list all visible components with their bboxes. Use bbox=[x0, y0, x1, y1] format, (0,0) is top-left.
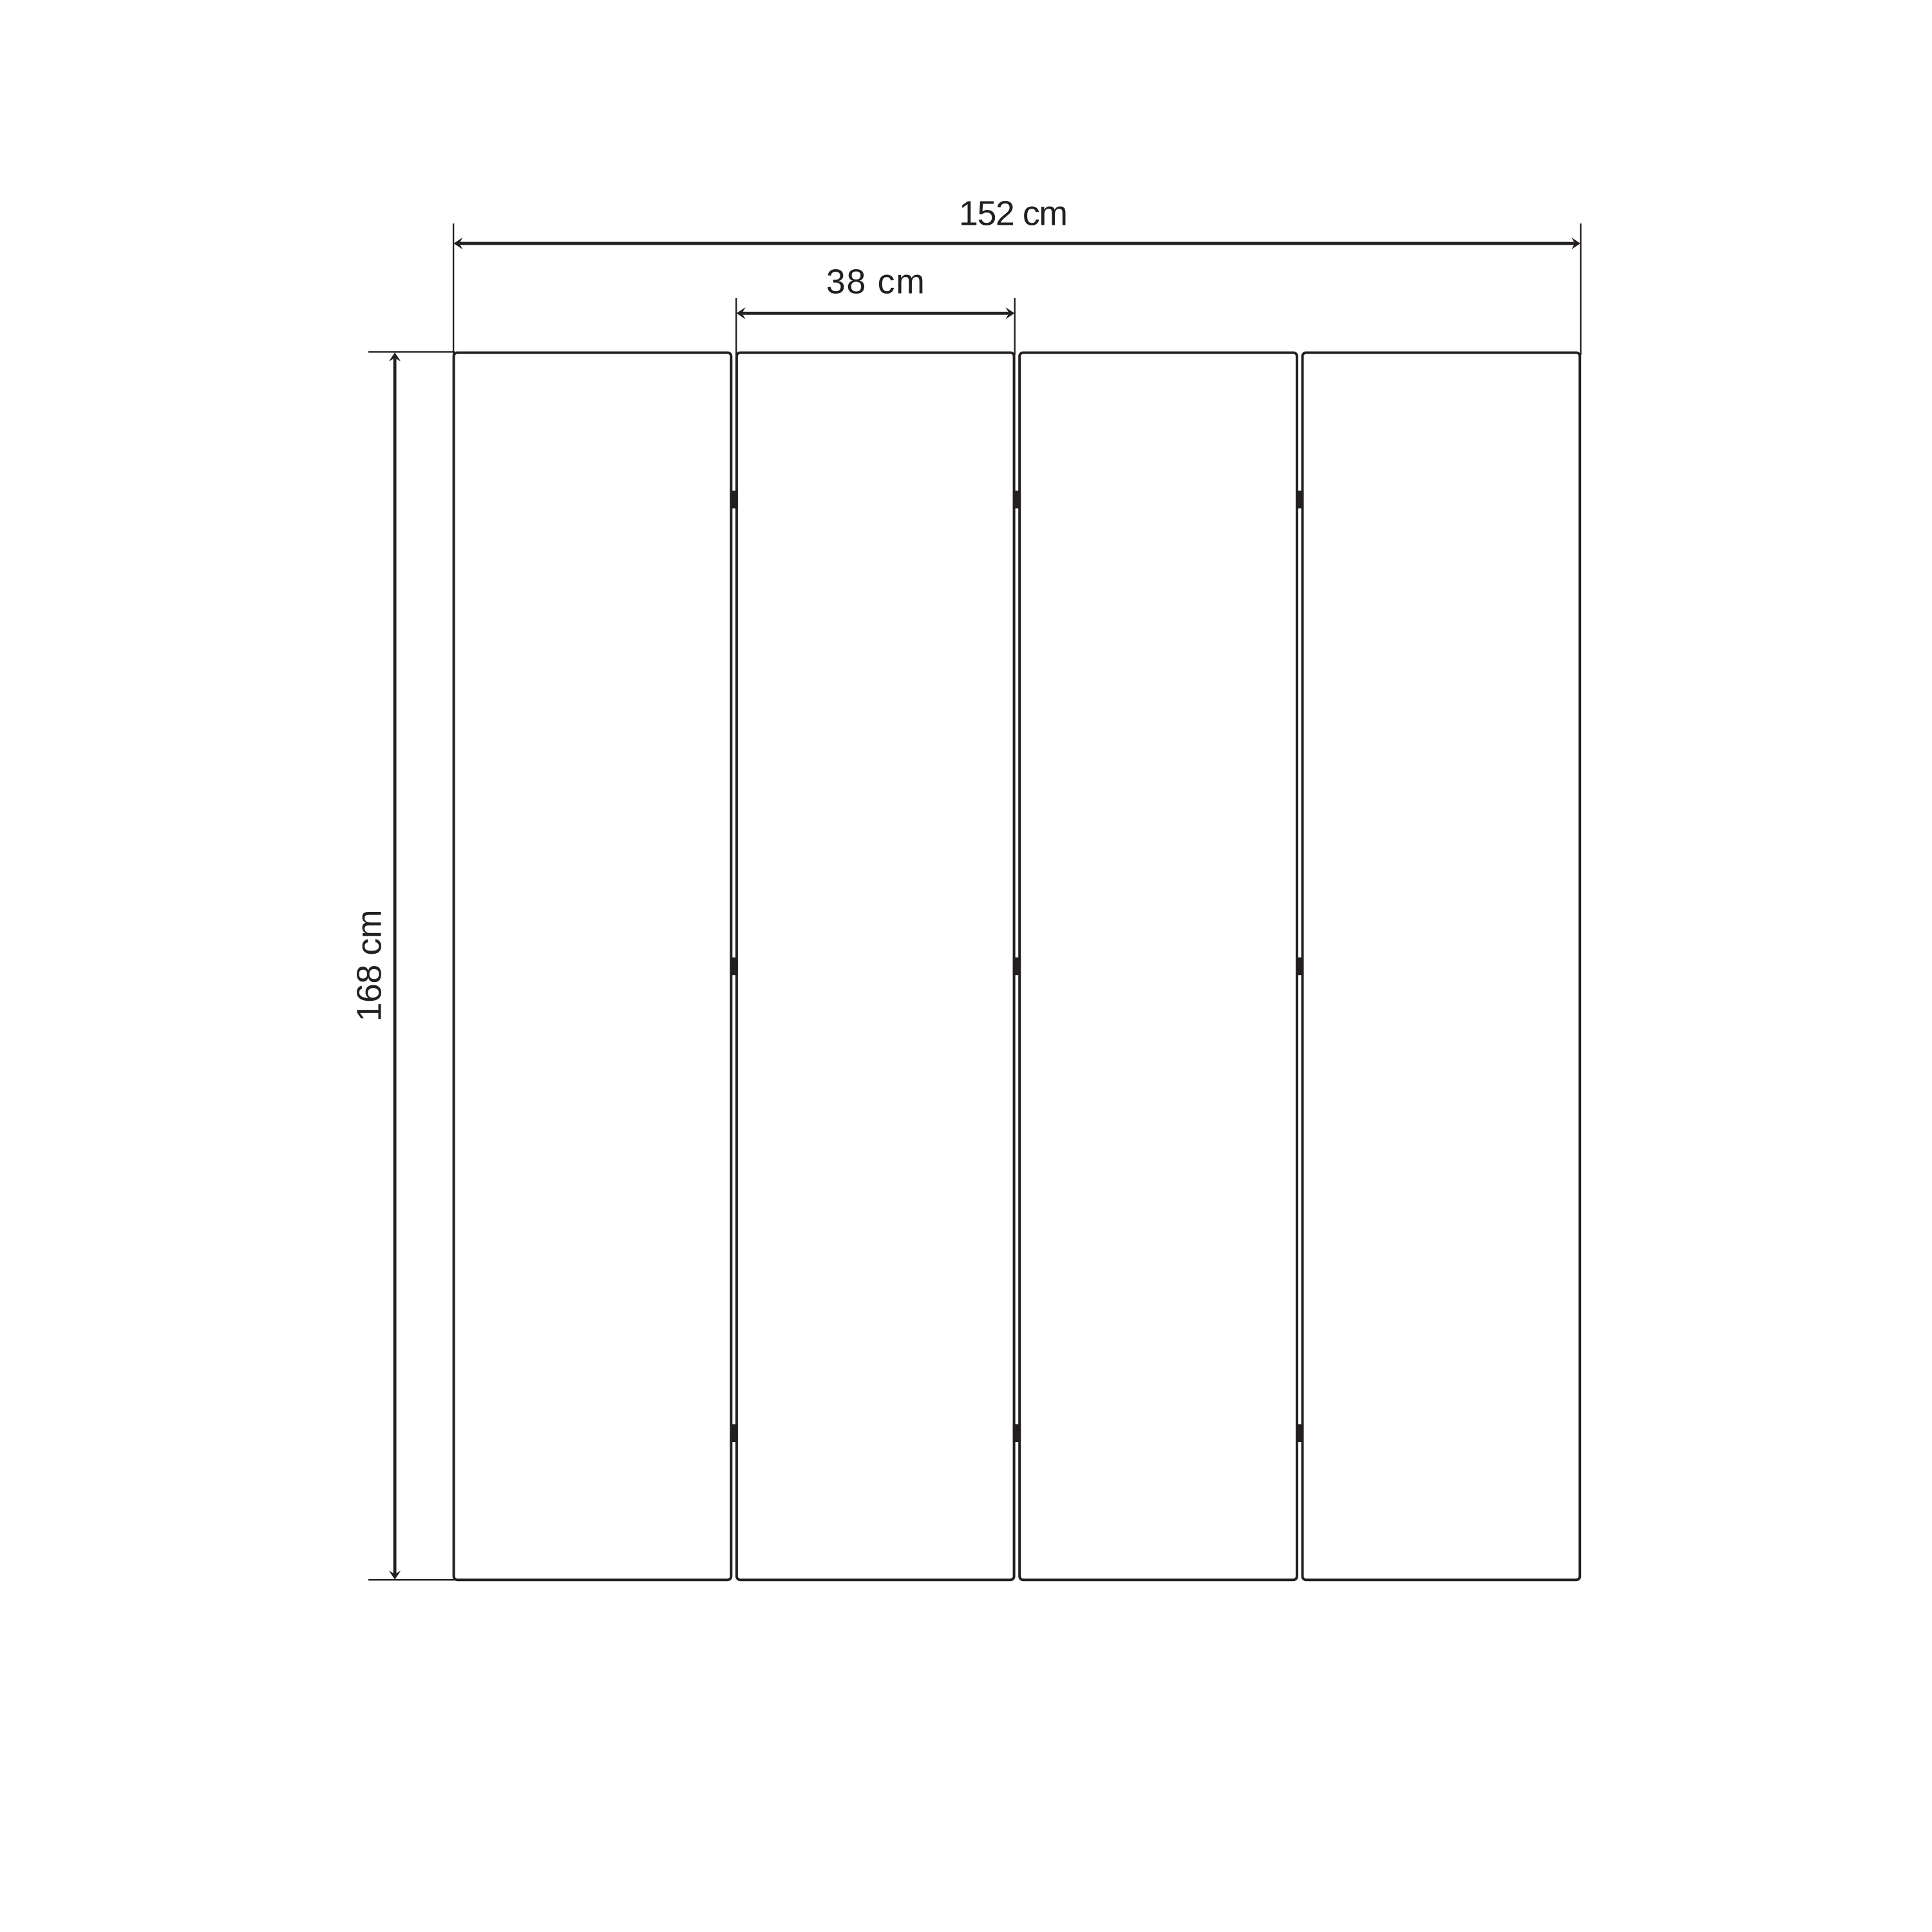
svg-text:152 cm: 152 cm bbox=[959, 194, 1068, 233]
svg-text:168 cm: 168 cm bbox=[350, 909, 389, 1021]
svg-text:38 cm: 38 cm bbox=[826, 263, 925, 301]
